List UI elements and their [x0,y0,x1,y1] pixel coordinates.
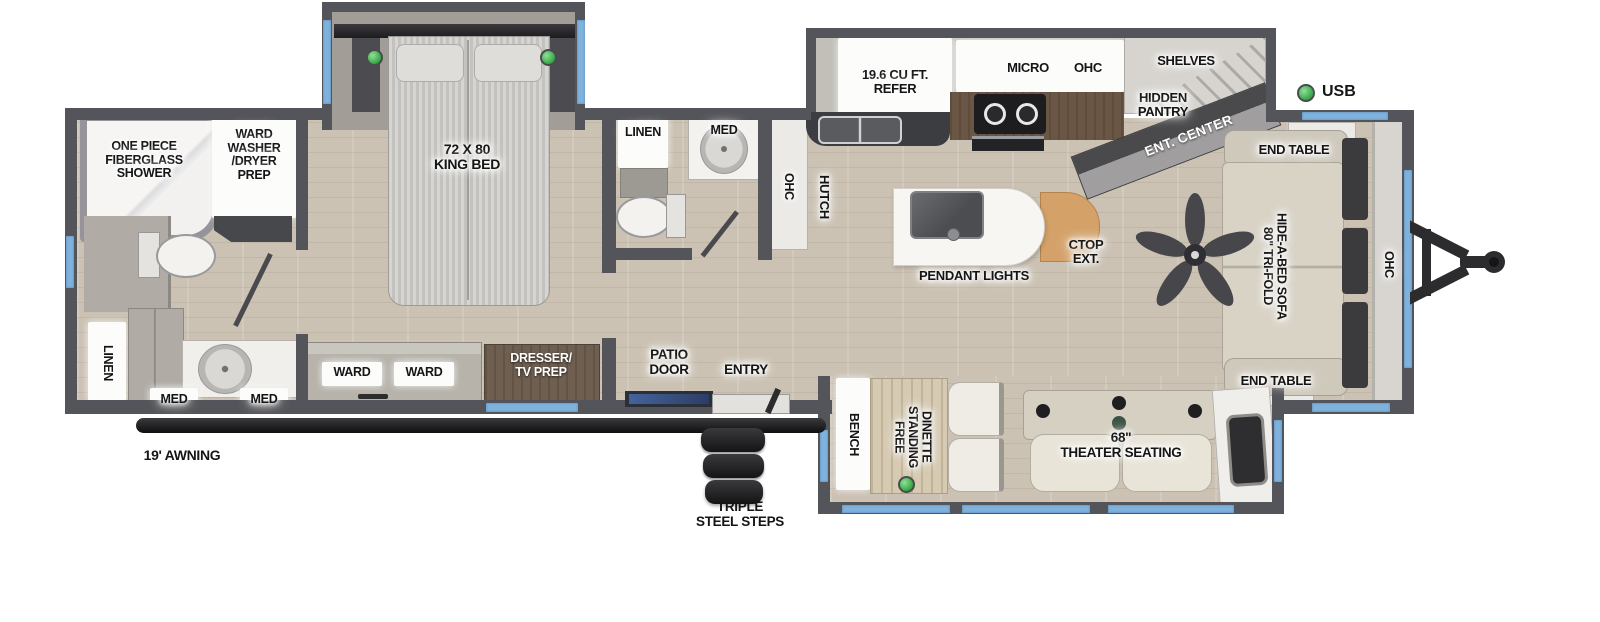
bedslide-wall-top [322,2,585,12]
kitchenslide-wall-top [806,28,1276,38]
label-med-right: MED [240,393,288,407]
mid-toilet-tank [666,194,686,238]
sofa-back-cushion-2 [1342,228,1368,294]
window-left-wall [66,236,74,288]
ward-handle [358,394,388,399]
wall-rearbath-top [296,108,308,250]
cupholder-3 [1112,416,1126,430]
rv-floorplan: USB ONE PIECE FIBERGLASS SHOWER WARD WAS… [0,0,1600,622]
label-mid-med: MED [700,124,748,138]
mid-toilet-bowl [616,196,672,238]
rear-toilet-bowl [156,234,216,278]
window-bedslide-right [577,20,585,104]
cupholder-2 [1112,396,1126,410]
window-top-right [1302,112,1388,120]
window-bottomslide-left [820,430,828,482]
usb-dot-bed-left [366,49,383,66]
label-sofa: 80" TRI-FOLD HIDE-A-BED SOFA [1250,192,1298,340]
label-end-table-bottom: END TABLE [1232,374,1320,388]
window-bedslide-left [323,20,331,104]
label-mid-linen: LINEN [612,126,674,140]
sofa-back-cushion-3 [1342,302,1368,388]
label-end-table-top: END TABLE [1250,143,1338,157]
label-hidden-pantry: HIDDEN PANTRY [1126,91,1200,119]
label-bench: BENCH [840,396,866,472]
wall-top-b [583,108,811,120]
wall-midbath-bottom [616,248,692,260]
cupholder-4 [1188,404,1202,418]
label-shelves: SHELVES [1144,54,1228,68]
washer-counter [214,216,292,242]
pillow-right [474,44,542,82]
hitch-tongue-icon [1410,215,1510,310]
wall-top-a [65,108,328,120]
usb-dot-bed-right [540,49,557,66]
window-bottomslide-c [1108,505,1234,513]
label-rear-linen: LINEN [92,330,122,396]
wall-midbath-right [758,108,772,260]
usb-legend-dot [1297,84,1315,102]
ceiling-fan-icon [1133,193,1257,317]
label-hutch: HUTCH [810,166,838,228]
label-dinette: FREE STANDING DINETTE [884,386,940,488]
label-ward-right: WARD [394,366,454,380]
label-refer: 19.6 CU FT. REFER [840,68,950,96]
wall-bedroom-right-bottom [602,338,616,414]
label-pendant-lights: PENDANT LIGHTS [900,269,1048,283]
mid-linen-base [620,168,668,198]
dinette-chair-top [948,382,1004,436]
label-dresser: DRESSER/ TV PREP [488,352,594,379]
usb-legend-label: USB [1322,83,1372,100]
label-med-left: MED [150,393,198,407]
entry-threshold [712,394,790,414]
window-bottomslide-a [842,505,950,513]
window-bottomslide-b [962,505,1090,513]
label-shower: ONE PIECE FIBERGLASS SHOWER [88,140,200,181]
cupholder-1 [1036,404,1050,418]
oven-drawer [972,136,1044,151]
label-steps: TRIPLE STEEL STEPS [688,500,792,529]
label-ctop-ext: CTOP EXT. [1058,238,1114,266]
sofa-back-cushion-1 [1342,138,1368,220]
label-ohc-kitchen: OHC [1066,61,1110,75]
nightstand-right [550,38,578,112]
mid-linen-cabinet [618,112,668,168]
pillow-left [396,44,464,82]
window-bottomslide-right [1274,420,1282,482]
label-entry: ENTRY [714,363,778,378]
label-patio-door: PATIO DOOR [640,348,698,377]
patio-door-glass [629,394,709,404]
label-ward-left: WARD [322,366,382,380]
rear-sink [198,344,252,394]
label-awning: 19' AWNING [134,448,230,463]
burner-right [1016,103,1038,125]
wall-rearbath-bottom [296,334,308,414]
island-faucet [947,228,960,241]
window-bottom-right [1312,403,1390,412]
kitchen-sink [818,116,902,144]
label-washer-dryer: WARD WASHER /DRYER PREP [214,128,294,182]
entry-step-2 [703,454,764,478]
label-micro: MICRO [998,61,1058,75]
kitchenslide-wall-left [806,28,816,112]
window-bedroom-bottom [486,403,578,412]
dinette-chair-bottom [948,438,1004,492]
label-ohc-hutch: OHC [775,160,801,212]
label-king-bed: 72 X 80 KING BED [400,142,534,172]
label-ohc-front: OHC [1375,238,1401,290]
entry-step-1 [701,428,765,452]
burner-left [984,103,1006,125]
label-theater: 68" THEATER SEATING [1040,431,1202,460]
fireplace-insert [1226,413,1269,487]
